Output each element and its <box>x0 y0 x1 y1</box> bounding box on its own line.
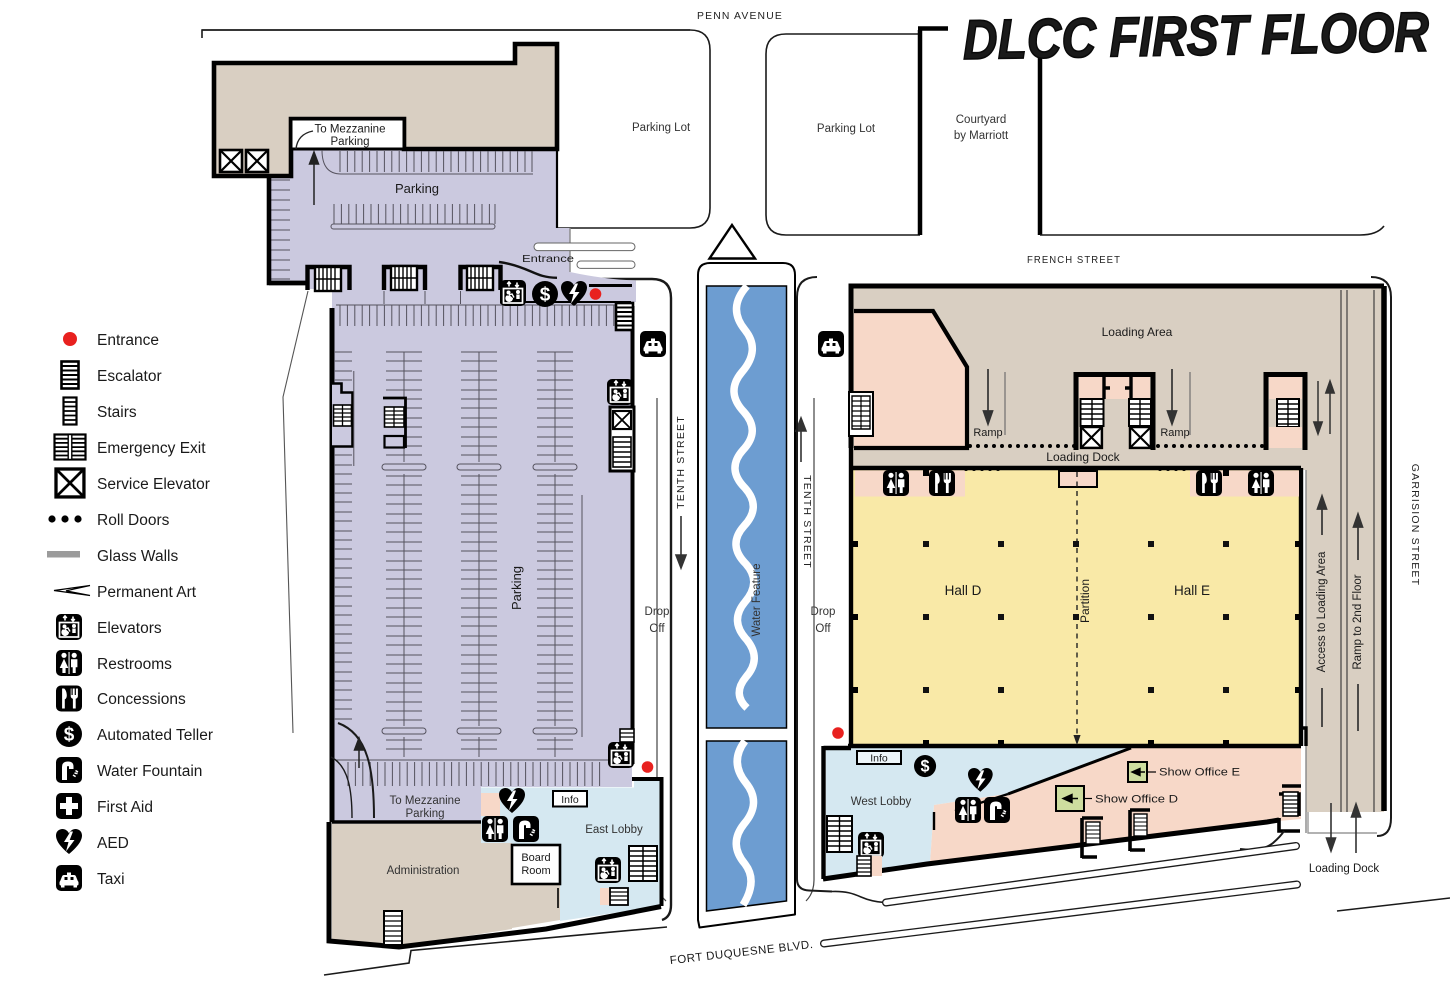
svg-text:Restrooms: Restrooms <box>97 656 172 673</box>
svg-text:AED: AED <box>97 835 129 852</box>
svg-text:Concessions: Concessions <box>97 691 186 708</box>
svg-text:West Lobby: West Lobby <box>851 796 912 808</box>
svg-text:Escalator: Escalator <box>97 368 162 385</box>
svg-text:Parking: Parking <box>509 566 524 610</box>
svg-text:Partition: Partition <box>1078 579 1092 623</box>
svg-text:Water Feature: Water Feature <box>751 563 763 636</box>
svg-text:Loading Area: Loading Area <box>1102 325 1173 339</box>
svg-text:DLCC FIRST FLOOR: DLCC FIRST FLOOR <box>962 0 1430 71</box>
svg-text:Board: Board <box>521 852 550 864</box>
svg-text:Ramp to 2nd Floor: Ramp to 2nd Floor <box>1352 574 1364 669</box>
svg-text:Stairs: Stairs <box>97 404 137 421</box>
svg-text:FRENCH STREET: FRENCH STREET <box>1027 254 1121 266</box>
svg-text:Taxi: Taxi <box>97 871 125 888</box>
svg-text:Info: Info <box>561 794 579 806</box>
svg-text:Parking: Parking <box>406 808 445 820</box>
svg-text:First Aid: First Aid <box>97 799 153 816</box>
svg-text:Hall D: Hall D <box>945 583 982 598</box>
svg-text:Ramp: Ramp <box>1160 427 1189 439</box>
svg-text:Parking: Parking <box>331 136 370 148</box>
svg-text:Emergency Exit: Emergency Exit <box>97 440 206 457</box>
svg-text:Courtyard: Courtyard <box>956 114 1007 126</box>
svg-text:Entrance: Entrance <box>97 332 159 349</box>
svg-text:Permanent Art: Permanent Art <box>97 584 197 601</box>
svg-text:Roll Doors: Roll Doors <box>97 512 170 529</box>
svg-text:Access to Loading Area: Access to Loading Area <box>1316 551 1328 672</box>
svg-text:Administration: Administration <box>387 865 460 877</box>
svg-text:Show Office E: Show Office E <box>1159 767 1240 779</box>
svg-text:GARRISION STREET: GARRISION STREET <box>1409 464 1421 586</box>
svg-text:To Mezzanine: To Mezzanine <box>390 795 461 807</box>
svg-text:Service Elevator: Service Elevator <box>97 476 210 493</box>
svg-text:Parking Lot: Parking Lot <box>632 122 691 134</box>
svg-text:Glass Walls: Glass Walls <box>97 548 178 565</box>
svg-text:TENTH STREET: TENTH STREET <box>801 475 813 569</box>
svg-text:To Mezzanine: To Mezzanine <box>315 124 386 136</box>
svg-text:Automated Teller: Automated Teller <box>97 727 213 744</box>
svg-text:PENN AVENUE: PENN AVENUE <box>697 10 783 22</box>
svg-text:Off: Off <box>815 623 831 635</box>
svg-text:Info: Info <box>870 753 888 765</box>
svg-text:Room: Room <box>521 865 550 877</box>
svg-text:Entrance: Entrance <box>522 254 575 265</box>
svg-text:Loading Dock: Loading Dock <box>1309 863 1380 875</box>
svg-text:Show Office D: Show Office D <box>1095 794 1178 806</box>
svg-text:Elevators: Elevators <box>97 620 162 637</box>
svg-text:Parking: Parking <box>395 181 439 196</box>
svg-text:Parking Lot: Parking Lot <box>817 123 876 135</box>
svg-text:Loading Dock: Loading Dock <box>1046 450 1120 464</box>
svg-text:East Lobby: East Lobby <box>585 824 643 836</box>
svg-text:Ramp: Ramp <box>973 427 1002 439</box>
svg-text:TENTH STREET: TENTH STREET <box>675 415 687 509</box>
svg-text:Hall E: Hall E <box>1174 583 1210 598</box>
svg-text:Water Fountain: Water Fountain <box>97 763 202 780</box>
svg-text:by Marriott: by Marriott <box>954 130 1009 142</box>
